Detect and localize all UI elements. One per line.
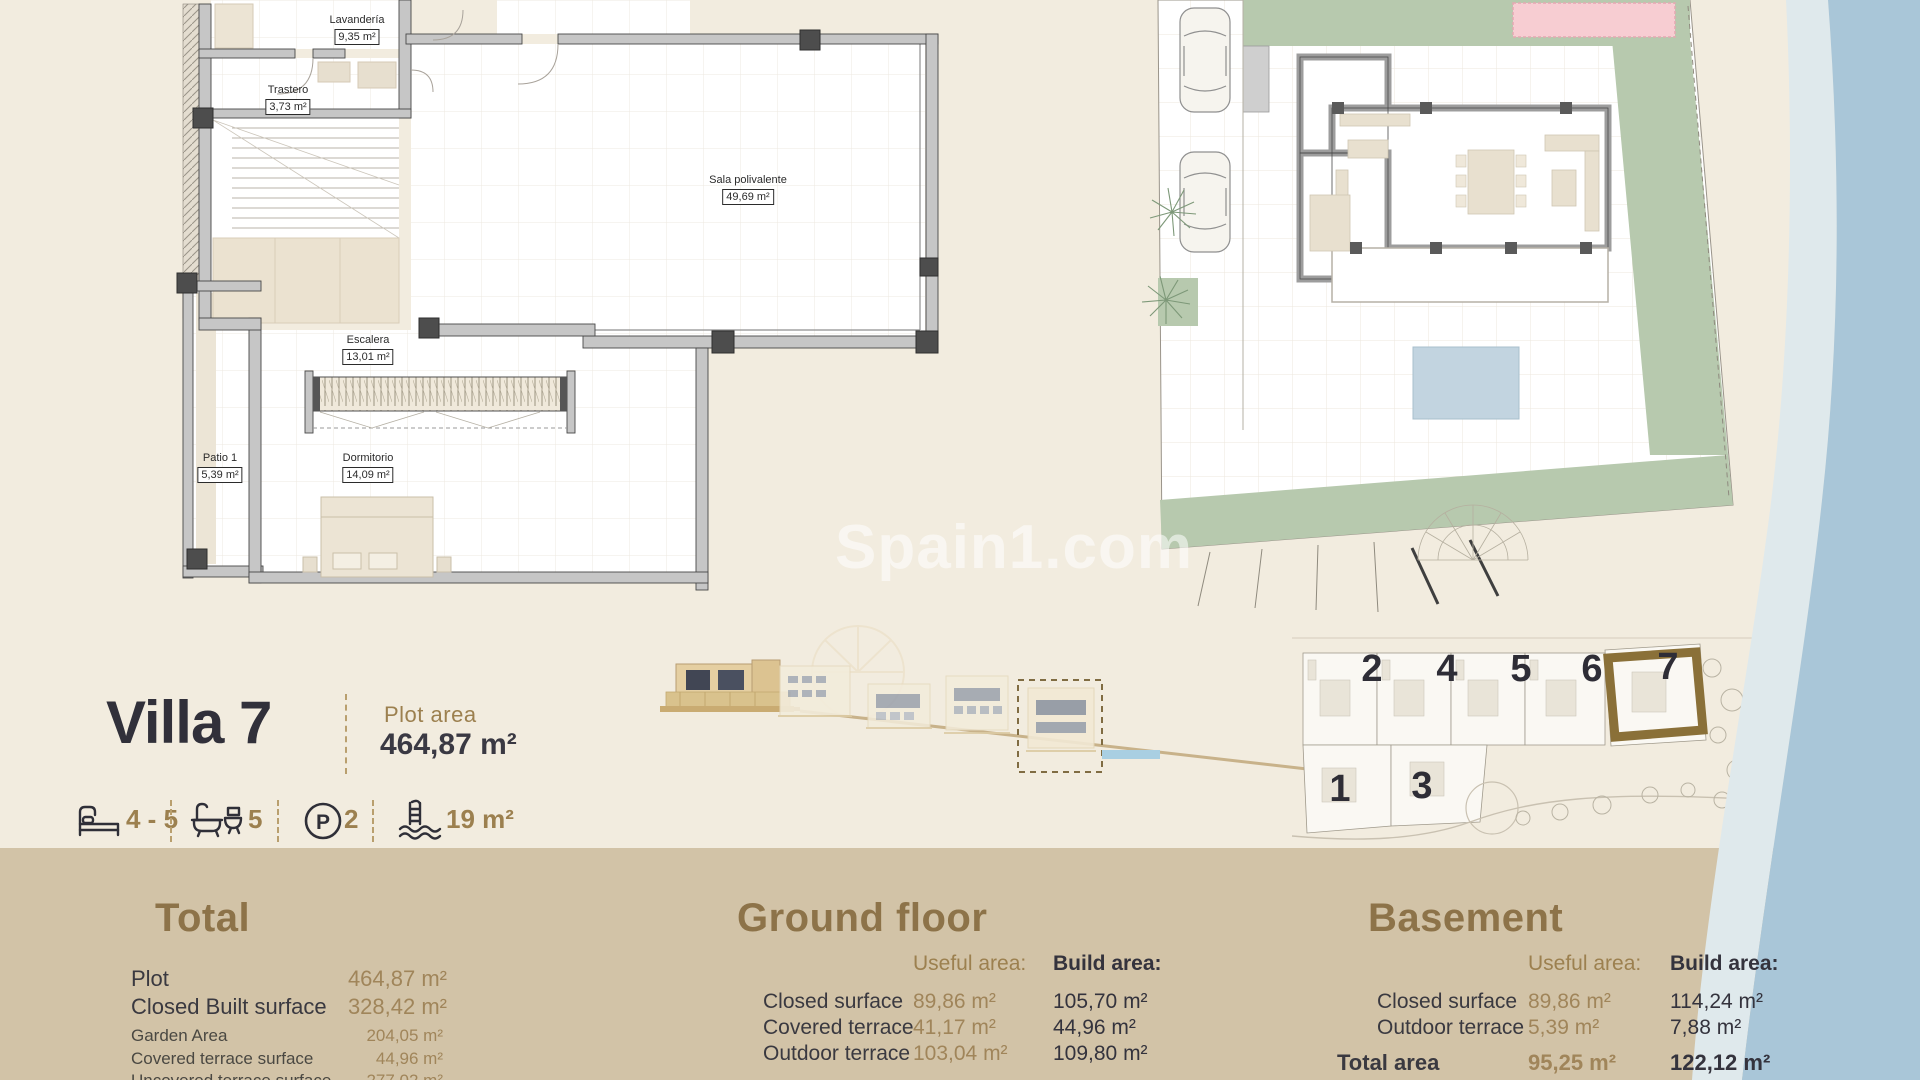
gf-build-value: 44,96 m² [1053,1016,1136,1040]
total-area-build: 122,12 m² [1670,1050,1770,1076]
plot-area-value: 464,87 m² [380,728,517,762]
bm-row-label: Closed surface [1377,990,1517,1014]
gf-row-label: Outdoor terrace [763,1042,910,1066]
sea-strip [1102,750,1160,759]
total-row-value: 277,02 m² [247,1071,443,1080]
total-area-useful: 95,25 m² [1528,1050,1616,1076]
build-area-header: Build area: [1053,952,1162,976]
lower-terrace [1413,347,1519,419]
total-section-title: Total [155,896,250,941]
build-area-header: Build area: [1670,952,1779,976]
plot-number-2: 2 [1361,648,1382,691]
plot-number-3: 3 [1411,765,1432,808]
useful-area-header: Useful area: [913,952,1026,976]
total-row-value: 204,05 m² [247,1026,443,1046]
gf-useful-value: 103,04 m² [913,1042,1008,1066]
room-label-patio: Patio 1 5,39 m² [197,452,242,483]
gf-useful-value: 41,17 m² [913,1016,996,1040]
gf-row-label: Closed surface [763,990,903,1014]
room-label-trastero: Trastero 3,73 m² [265,84,310,115]
coastline-decor [1692,0,1920,1080]
baths-count: 5 [248,804,262,835]
total-row-label: Plot [131,966,169,992]
parking-icon: P [303,801,343,846]
plot-area-label: Plot area [384,702,477,728]
plot-number-6: 6 [1581,648,1602,691]
total-row-value: 44,96 m² [247,1049,443,1069]
useful-area-header: Useful area: [1528,952,1641,976]
bm-useful-value: 5,39 m² [1528,1016,1599,1040]
bm-build-value: 114,24 m² [1670,990,1763,1014]
brochure-page: Spain1.com Lavandería 9,35 m² Trastero 3… [0,0,1920,1080]
plot-number-1: 1 [1329,768,1350,811]
room-label-escalera: Escalera 13,01 m² [342,334,393,365]
room-label-sala: Sala polivalente 49,69 m² [709,174,787,205]
bm-build-value: 7,88 m² [1670,1016,1741,1040]
plot-number-4: 4 [1436,648,1457,691]
gf-build-value: 105,70 m² [1053,990,1148,1014]
pool-size: 19 m² [446,804,514,835]
bed-icon [76,802,122,843]
pool-icon [398,798,442,847]
feature-divider [277,800,279,842]
gf-useful-value: 89,86 m² [913,990,996,1014]
feature-divider [372,800,374,842]
plot-number-7: 7 [1657,646,1678,689]
ground-floor-section-title: Ground floor [737,896,987,941]
parking-count: 2 [344,804,358,835]
feature-divider [170,800,172,842]
page-title: Villa 7 [106,688,271,757]
total-area-label: Total area [1337,1050,1439,1076]
villa-1-elevation [660,660,794,712]
bm-useful-value: 89,86 m² [1528,990,1611,1014]
villa-row-faded [778,666,1096,751]
header-divider [345,694,347,774]
plot-number-5: 5 [1510,648,1531,691]
svg-text:P: P [316,811,330,834]
pool [1513,3,1675,37]
driveway-marks [1198,540,1498,612]
gf-build-value: 109,80 m² [1053,1042,1148,1066]
total-row-value: 328,42 m² [247,994,447,1020]
ground-floor-site-plan [1142,0,1733,612]
total-row-label: Garden Area [131,1026,227,1046]
bath-icon [190,800,244,847]
basement-section-title: Basement [1368,896,1563,941]
watermark: Spain1.com [835,512,1193,583]
room-label-lavanderia: Lavandería 9,35 m² [329,14,384,45]
bm-row-label: Outdoor terrace [1377,1016,1524,1040]
elevation-drawing [660,626,1307,772]
gf-row-label: Covered terrace [763,1016,914,1040]
room-label-dormitorio: Dormitorio 14,09 m² [342,452,393,483]
total-row-value: 464,87 m² [247,966,447,992]
